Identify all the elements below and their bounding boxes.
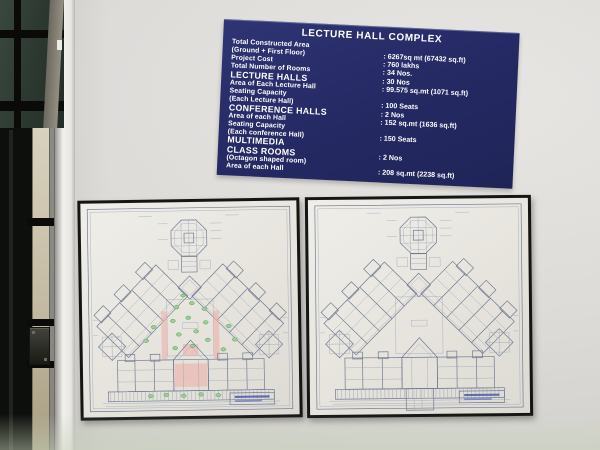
door-frame-shadow	[49, 124, 55, 450]
info-sign: LECTURE HALL COMPLEX Total Constructed A…	[217, 19, 520, 189]
floor-plan-paper	[308, 198, 530, 415]
door-glass-reflection	[9, 130, 13, 450]
floor-plan-paper	[80, 200, 299, 417]
floor-plan-drawing-left	[80, 200, 299, 417]
lock-screw	[44, 358, 47, 361]
wall-bottom-tint	[0, 414, 600, 450]
door-crossbar	[27, 218, 54, 226]
floor-plan-frame-right	[305, 195, 533, 418]
door-dark-glass	[0, 120, 34, 450]
glass-door	[0, 0, 76, 450]
floor-plan-frame-left	[77, 197, 302, 420]
door-frame-strip	[32, 124, 50, 450]
frame-sticker	[57, 40, 62, 50]
door-crossbar	[27, 319, 54, 326]
sign-value: : 2 Nos	[378, 150, 505, 168]
window	[0, 0, 64, 128]
photo-of-wall-with-sign-and-plans: LECTURE HALL COMPLEX Total Constructed A…	[0, 0, 600, 450]
door-lock	[29, 327, 50, 365]
lock-screw	[32, 331, 35, 334]
floor-plan-drawing-right	[308, 198, 530, 415]
